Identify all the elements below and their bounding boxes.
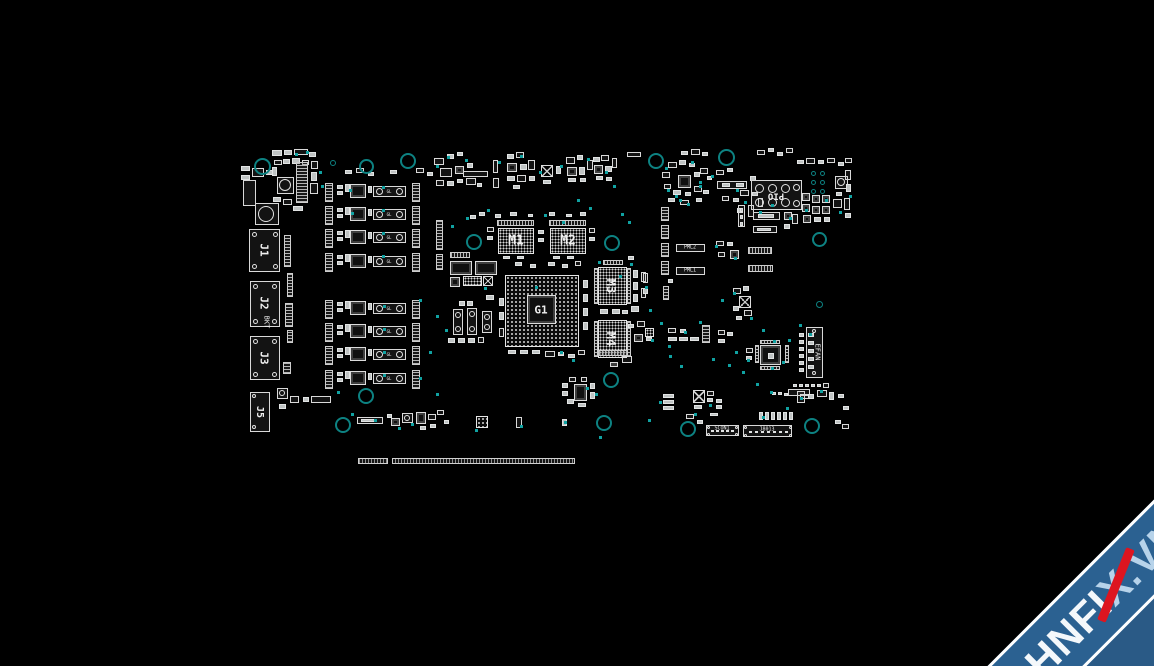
component-pad — [697, 420, 703, 424]
pad-circle — [272, 372, 277, 377]
pin-strip — [412, 300, 420, 319]
component-pad — [486, 295, 494, 300]
pin-strip — [412, 323, 420, 342]
chip — [802, 193, 810, 201]
via-hole — [811, 180, 816, 185]
component-pad — [337, 372, 343, 376]
component-pad — [777, 152, 783, 156]
test-point — [849, 195, 852, 198]
component-pad — [846, 184, 851, 192]
crystal-component — [483, 276, 493, 286]
component-pad — [337, 325, 343, 329]
component-pad — [368, 349, 372, 356]
chip — [610, 362, 618, 367]
chip — [350, 184, 366, 198]
component-pad — [836, 192, 842, 196]
bga-grid — [476, 416, 488, 428]
pad-circle — [376, 211, 383, 218]
pin-strip — [627, 268, 631, 304]
test-point — [484, 287, 487, 290]
test-point — [498, 161, 501, 164]
test-point — [747, 359, 750, 362]
component-outline — [806, 158, 815, 164]
component-pad — [337, 237, 343, 241]
component-pad — [765, 412, 769, 420]
component-pad — [818, 160, 824, 164]
pad-circle — [707, 426, 710, 429]
test-point — [628, 221, 631, 224]
component-pad — [368, 186, 372, 193]
test-point — [709, 404, 712, 407]
watermark: HNFIX.VN — [904, 416, 1154, 666]
component-pad — [390, 170, 397, 174]
component-pad — [589, 237, 595, 241]
pin-strip — [450, 252, 470, 258]
test-point — [649, 309, 652, 312]
pad-circle — [793, 200, 800, 207]
pad-circle — [396, 234, 403, 241]
component-pad — [679, 160, 686, 165]
test-point — [800, 397, 803, 400]
pin-strip — [603, 260, 623, 265]
chip — [822, 206, 830, 214]
pad-circle — [279, 179, 291, 191]
component-outline — [700, 168, 708, 174]
test-point — [669, 355, 672, 358]
component-pad — [368, 256, 372, 263]
component-pad — [543, 180, 551, 184]
mount-hole — [466, 234, 482, 250]
chip — [350, 230, 366, 244]
test-point — [436, 165, 439, 168]
component-pad — [495, 214, 501, 218]
component-pad — [567, 399, 574, 404]
component-pad — [580, 178, 586, 182]
component-outline — [487, 227, 494, 232]
component-pad — [633, 294, 638, 302]
test-point — [648, 419, 651, 422]
chip — [350, 301, 366, 315]
component-pad — [520, 350, 528, 354]
component-pad — [548, 262, 555, 266]
test-point — [562, 221, 565, 224]
component-pad — [736, 316, 742, 320]
test-point — [429, 351, 432, 354]
pad-circle — [707, 433, 710, 436]
test-point — [564, 421, 567, 424]
pin-strip — [412, 370, 420, 389]
component-pad — [549, 212, 555, 216]
component-outline — [842, 424, 849, 429]
test-point — [711, 175, 714, 178]
pin-strip — [325, 323, 333, 342]
component-pad — [272, 150, 282, 156]
label-m3: M3 — [605, 279, 617, 293]
component-pad — [783, 412, 787, 420]
component-pad — [457, 179, 463, 183]
component-outline — [637, 321, 645, 327]
test-point — [419, 377, 422, 380]
test-point — [382, 209, 385, 212]
component-pad — [694, 405, 702, 409]
pin-strip — [325, 300, 333, 319]
component-pad — [447, 181, 454, 186]
component-pad — [838, 162, 844, 166]
test-point — [586, 387, 589, 390]
component-outline — [740, 190, 749, 196]
component-pad — [596, 176, 603, 180]
via-hole — [816, 301, 823, 308]
component-pad — [283, 159, 290, 164]
pad-circle — [735, 433, 738, 436]
test-point — [789, 217, 792, 220]
label-gl: GL — [387, 213, 392, 217]
test-point — [605, 171, 608, 174]
component-outline — [716, 170, 724, 175]
crystal-component — [693, 390, 705, 403]
test-point — [321, 185, 324, 188]
component-pad — [702, 152, 708, 156]
pcie-key-notch — [387, 458, 393, 464]
component-pad — [457, 152, 463, 156]
component-pad — [593, 157, 600, 162]
pad-circle — [272, 319, 277, 324]
component-outline — [845, 170, 851, 180]
pad-circle — [744, 426, 747, 429]
pad-circle — [396, 351, 403, 358]
component-outline — [668, 328, 676, 333]
component-pad — [772, 392, 776, 395]
test-point — [687, 203, 690, 206]
component-outline — [517, 175, 526, 182]
component-pad — [279, 404, 286, 409]
test-point — [651, 339, 654, 342]
component-pad — [583, 308, 588, 316]
component-outline — [528, 160, 535, 170]
component-outline — [833, 199, 842, 208]
label-gl: GL — [387, 260, 392, 264]
component-pad — [600, 309, 608, 314]
test-point — [466, 217, 469, 220]
component-pad — [784, 224, 790, 229]
component-pad — [368, 303, 372, 310]
label-pml1: PML1 — [684, 269, 696, 274]
pad-circle — [376, 258, 383, 265]
pad-circle — [396, 328, 403, 335]
component-pad — [799, 333, 804, 337]
pad-circle — [789, 426, 792, 429]
pin-strip — [755, 345, 759, 363]
crystal-component — [739, 296, 751, 308]
chip — [391, 418, 400, 426]
label-pio: PIO — [768, 191, 784, 200]
test-point — [383, 305, 386, 308]
via-hole — [820, 171, 825, 176]
mount-hole — [359, 159, 374, 174]
test-point — [619, 275, 622, 278]
component-pad — [606, 177, 612, 181]
component-outline — [478, 337, 484, 343]
component-outline — [274, 160, 282, 165]
component-pad — [793, 384, 797, 387]
component-outline — [581, 377, 587, 382]
component-pad — [716, 399, 722, 403]
pad-circle — [376, 305, 383, 312]
pad-circle — [279, 390, 285, 396]
test-point — [825, 199, 828, 202]
component-outline — [493, 178, 499, 188]
test-point — [734, 257, 737, 260]
component-pad — [566, 214, 572, 217]
pin-strip — [284, 235, 291, 267]
test-point — [572, 359, 575, 362]
pad-circle — [455, 326, 461, 332]
component-pad — [337, 231, 343, 235]
label-bkt: BKT — [263, 316, 270, 329]
component-outline — [746, 348, 753, 353]
pad-circle — [455, 312, 461, 318]
test-point — [382, 232, 385, 235]
component-pad — [507, 176, 515, 181]
test-point — [750, 317, 753, 320]
chip — [634, 334, 643, 342]
component-pad — [710, 413, 718, 416]
pad-circle — [252, 264, 257, 269]
component-pad — [479, 212, 485, 216]
chip — [812, 206, 820, 214]
watermark-banner: HNFIX.VN — [932, 425, 1154, 666]
component-pad — [529, 176, 535, 181]
test-point — [447, 156, 450, 159]
test-point — [735, 351, 738, 354]
component-pad — [777, 412, 781, 420]
test-point — [306, 151, 309, 154]
test-point — [645, 286, 648, 289]
test-point — [759, 211, 762, 214]
pin-strip — [661, 225, 669, 239]
chip — [416, 412, 426, 424]
pin-strip — [412, 183, 420, 202]
via-hole — [330, 160, 336, 166]
test-point — [383, 374, 386, 377]
component-pad — [789, 412, 793, 420]
component-pad — [583, 280, 588, 288]
component-pad — [368, 373, 372, 380]
component-pad — [590, 383, 595, 389]
component-pad — [520, 164, 527, 170]
test-point — [383, 351, 386, 354]
component-pad — [420, 426, 426, 430]
test-point — [699, 321, 702, 324]
test-point — [805, 209, 808, 212]
component-outline — [428, 414, 436, 420]
component-pad — [427, 172, 433, 176]
label-j5: J5 — [254, 406, 264, 418]
component-pad — [758, 214, 774, 218]
pad-circle — [755, 184, 764, 193]
component-outline — [440, 168, 452, 177]
component-outline — [589, 228, 595, 233]
pin-strip — [702, 325, 710, 343]
test-point — [715, 245, 718, 248]
chip — [594, 165, 603, 174]
test-point — [587, 158, 590, 161]
test-point — [660, 322, 663, 325]
pin-strip — [412, 346, 420, 365]
component-pad — [784, 393, 788, 396]
test-point — [465, 159, 468, 162]
test-point — [786, 407, 789, 410]
pin-strip — [760, 340, 780, 344]
test-point — [351, 413, 354, 416]
test-point — [742, 371, 745, 374]
component-pad — [668, 337, 677, 341]
pad-circle — [252, 232, 257, 237]
component-pad — [718, 339, 725, 343]
test-point — [598, 261, 601, 264]
component-pad — [768, 148, 774, 152]
pin-strip — [287, 273, 293, 297]
component-pad — [733, 198, 739, 202]
test-point — [382, 255, 385, 258]
component-pad — [532, 350, 540, 354]
test-point — [520, 155, 523, 158]
pin-strip — [412, 253, 420, 272]
pin-strip — [325, 370, 333, 389]
test-point — [744, 201, 747, 204]
component-pad — [510, 212, 517, 216]
component-pad — [663, 400, 674, 404]
component-pad — [628, 324, 634, 328]
label-j1: J1 — [259, 243, 270, 256]
component-outline — [827, 158, 835, 163]
component-outline — [718, 252, 725, 257]
component-pad — [337, 302, 343, 306]
component-outline — [792, 214, 798, 224]
pin-strip — [549, 220, 586, 226]
pad-circle — [812, 371, 816, 375]
component-pad — [337, 208, 343, 212]
test-point — [560, 165, 563, 168]
label-gl: GL — [387, 190, 392, 194]
pin-strip — [412, 229, 420, 248]
component-outline — [844, 198, 850, 210]
label-efan: EFAN — [814, 344, 821, 361]
pad-circle — [396, 258, 403, 265]
component-pad — [740, 208, 743, 212]
mount-hole — [648, 153, 664, 169]
test-point — [621, 213, 624, 216]
component-pad — [284, 150, 292, 155]
test-point — [520, 425, 523, 428]
mount-hole — [812, 232, 827, 247]
component-pad — [707, 398, 713, 402]
component-pad — [736, 183, 744, 187]
boardview-canvas: GLGLGLGLGLGLGLGLJ1J2BKTJ3J5M1M2G1M3M4PIO… — [0, 0, 1154, 666]
component-pad — [337, 331, 343, 335]
chip — [507, 163, 517, 172]
component-pad — [517, 256, 524, 259]
label-j3: J3 — [259, 351, 270, 364]
component-pad — [799, 340, 804, 344]
pad-circle — [396, 188, 403, 195]
component-outline — [707, 391, 714, 396]
component-pad — [309, 152, 316, 157]
pad-circle — [484, 314, 490, 320]
test-point — [445, 329, 448, 332]
test-point — [487, 209, 490, 212]
test-point — [712, 358, 715, 361]
chip — [350, 347, 366, 361]
component-pad — [799, 384, 803, 387]
test-point — [756, 383, 759, 386]
component-pad — [337, 191, 343, 195]
component-outline — [416, 168, 424, 173]
component-pad — [470, 215, 476, 219]
test-point — [613, 185, 616, 188]
label-g1: G1 — [534, 305, 547, 316]
component-pad — [503, 256, 510, 259]
pin-strip — [325, 253, 333, 272]
pad-circle — [253, 284, 258, 289]
mount-hole — [680, 421, 696, 437]
test-point — [560, 351, 563, 354]
component-pad — [337, 378, 343, 382]
component-outline — [575, 261, 581, 266]
component-outline — [627, 152, 641, 157]
pad-circle — [837, 178, 845, 186]
component-pad — [668, 279, 673, 283]
pad-circle — [253, 372, 258, 377]
component-pad — [757, 228, 771, 231]
test-point — [820, 390, 823, 393]
test-point — [589, 207, 592, 210]
label-gl: GL — [387, 236, 392, 240]
pin-strip — [785, 345, 789, 363]
test-point — [451, 225, 454, 228]
component-outline — [463, 171, 488, 177]
test-point — [773, 340, 776, 343]
component-pad — [778, 392, 782, 395]
test-point — [351, 212, 354, 215]
pad-circle — [376, 375, 383, 382]
component-pad — [817, 384, 821, 387]
mount-hole — [804, 418, 820, 434]
component-pad — [448, 338, 455, 343]
test-point — [675, 195, 678, 198]
chip — [350, 254, 366, 268]
component-pad — [368, 326, 372, 333]
test-point — [599, 436, 602, 439]
component-outline — [601, 155, 609, 161]
pin-strip — [661, 207, 669, 221]
test-point — [782, 361, 785, 364]
component-pad — [835, 420, 841, 424]
component-pad — [368, 209, 372, 216]
component-pad — [562, 391, 568, 396]
test-point — [349, 189, 352, 192]
component-pad — [459, 301, 465, 306]
test-point — [684, 331, 687, 334]
test-point — [577, 199, 580, 202]
component-pad — [507, 154, 514, 159]
chip — [450, 277, 460, 287]
pin-strip — [325, 183, 333, 202]
test-point — [699, 185, 702, 188]
component-pad — [696, 198, 702, 202]
mount-hole — [604, 235, 620, 251]
label-j8013: J8013 — [759, 428, 774, 433]
